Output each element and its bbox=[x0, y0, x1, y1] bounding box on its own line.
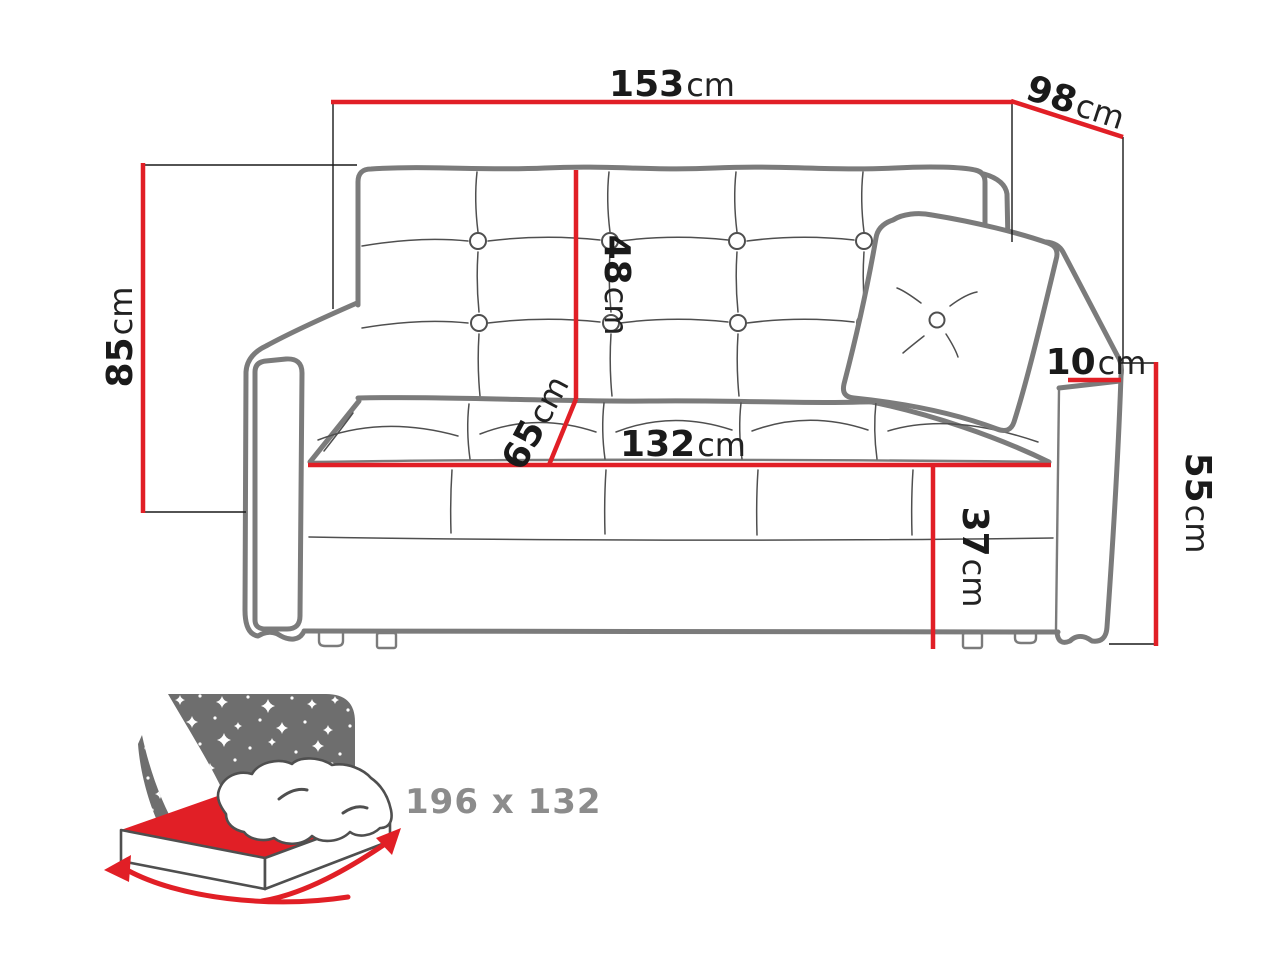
sofa-dimension-diagram: 153cm 98cm 85cm 48cm 65cm 132cm 37cm 10c… bbox=[0, 0, 1280, 960]
left-armrest-panel bbox=[255, 359, 302, 629]
arrow-length-head bbox=[104, 855, 131, 882]
leg bbox=[963, 633, 982, 648]
sleeping-area-label: 196 x 132 bbox=[405, 782, 602, 822]
sleeping-function-icon: 196 x 132 bbox=[104, 694, 602, 902]
tufting-buttons bbox=[470, 233, 873, 331]
front-base-panel bbox=[304, 470, 1058, 632]
leg bbox=[319, 633, 343, 646]
right-armrest-panel-inner bbox=[1056, 390, 1059, 630]
label-total-width: 153cm bbox=[609, 64, 735, 105]
pillow-outline bbox=[843, 214, 1057, 431]
label-total-height: 85cm bbox=[100, 287, 141, 388]
label-backrest-height: 48cm bbox=[596, 235, 637, 336]
pillow-button bbox=[930, 313, 945, 328]
label-total-depth: 98cm bbox=[1021, 68, 1130, 138]
bed-with-stars-icon bbox=[104, 694, 401, 902]
label-seat-width: 132cm bbox=[620, 424, 746, 465]
leg bbox=[377, 633, 396, 648]
diagram-canvas: 153cm 98cm 85cm 48cm 65cm 132cm 37cm 10c… bbox=[0, 0, 1280, 960]
sofa-legs bbox=[319, 632, 1036, 648]
decorative-pillow bbox=[843, 214, 1057, 431]
label-armrest-height: 55cm bbox=[1177, 453, 1218, 554]
label-seat-height: 37cm bbox=[954, 507, 995, 608]
label-armrest-width: 10cm bbox=[1046, 342, 1147, 383]
